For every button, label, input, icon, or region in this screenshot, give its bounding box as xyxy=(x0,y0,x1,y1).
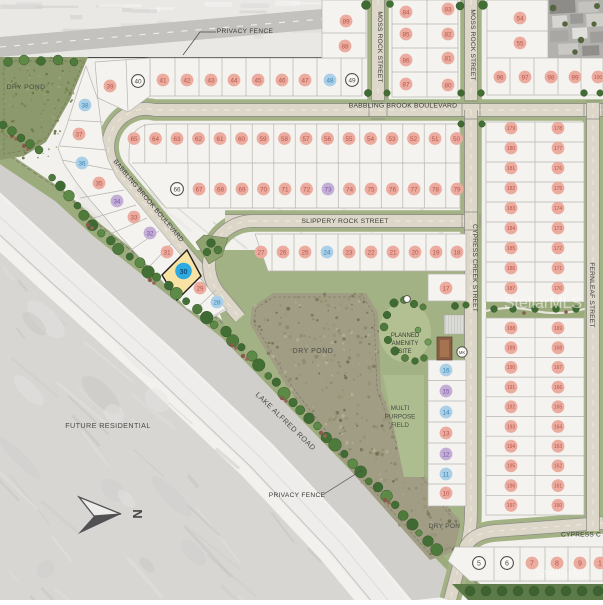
svg-text:23: 23 xyxy=(345,249,353,256)
svg-text:58: 58 xyxy=(281,136,289,143)
svg-text:72: 72 xyxy=(303,186,311,193)
svg-text:80: 80 xyxy=(444,82,452,89)
svg-text:71: 71 xyxy=(281,186,289,193)
svg-text:83: 83 xyxy=(444,6,452,13)
svg-text:31: 31 xyxy=(163,249,171,256)
svg-text:184: 184 xyxy=(507,226,516,232)
svg-text:FIELD: FIELD xyxy=(391,422,409,429)
svg-text:SITE: SITE xyxy=(398,349,411,355)
svg-text:57: 57 xyxy=(302,136,310,143)
svg-text:PURPOSE: PURPOSE xyxy=(385,414,416,421)
svg-text:166: 166 xyxy=(554,385,563,391)
svg-text:76: 76 xyxy=(389,186,397,193)
svg-text:MOSS ROCK STREET: MOSS ROCK STREET xyxy=(469,9,476,80)
svg-text:39: 39 xyxy=(106,83,114,90)
svg-text:BABBLING BROOK BOULEVARD: BABBLING BROOK BOULEVARD xyxy=(349,103,458,110)
svg-text:186: 186 xyxy=(507,266,516,272)
svg-text:61: 61 xyxy=(216,136,224,143)
svg-text:12: 12 xyxy=(442,451,450,458)
svg-text:163: 163 xyxy=(554,444,563,450)
svg-text:187: 187 xyxy=(507,286,516,292)
svg-text:54: 54 xyxy=(516,15,524,22)
svg-text:161: 161 xyxy=(554,483,563,489)
svg-text:StellarMLS: StellarMLS xyxy=(504,295,582,312)
svg-text:PLANNED: PLANNED xyxy=(391,333,420,339)
svg-text:78: 78 xyxy=(432,186,440,193)
svg-text:7: 7 xyxy=(530,561,534,568)
svg-text:47: 47 xyxy=(301,77,309,84)
svg-text:10: 10 xyxy=(442,490,450,497)
svg-text:26: 26 xyxy=(279,249,287,256)
svg-text:28: 28 xyxy=(213,299,221,306)
svg-text:17: 17 xyxy=(442,285,450,292)
svg-text:82: 82 xyxy=(444,31,452,38)
svg-text:15: 15 xyxy=(442,388,450,395)
svg-text:41: 41 xyxy=(159,77,167,84)
svg-text:65: 65 xyxy=(130,136,138,143)
svg-text:192: 192 xyxy=(507,405,516,411)
svg-text:86: 86 xyxy=(402,57,410,64)
svg-text:85: 85 xyxy=(402,31,410,38)
svg-text:44: 44 xyxy=(230,77,238,84)
svg-text:46: 46 xyxy=(278,77,286,84)
svg-text:30: 30 xyxy=(180,267,188,276)
svg-text:55: 55 xyxy=(345,136,353,143)
svg-text:188: 188 xyxy=(507,326,516,332)
svg-text:178: 178 xyxy=(554,126,563,132)
svg-text:185: 185 xyxy=(507,246,516,252)
svg-text:88: 88 xyxy=(341,43,349,50)
svg-text:74: 74 xyxy=(346,186,354,193)
svg-text:99: 99 xyxy=(571,74,579,81)
svg-text:52: 52 xyxy=(410,136,418,143)
svg-text:96: 96 xyxy=(496,74,504,81)
svg-text:SLIPPERY ROCK STREET: SLIPPERY ROCK STREET xyxy=(301,218,388,225)
svg-text:81: 81 xyxy=(444,55,452,62)
svg-text:16: 16 xyxy=(442,367,450,374)
svg-text:11: 11 xyxy=(443,471,450,478)
svg-text:168: 168 xyxy=(554,346,563,352)
svg-text:MK: MK xyxy=(459,350,466,355)
svg-text:DRY POND: DRY POND xyxy=(7,84,46,91)
svg-text:164: 164 xyxy=(554,424,563,430)
svg-text:51: 51 xyxy=(431,136,439,143)
svg-text:167: 167 xyxy=(554,365,563,371)
svg-text:48: 48 xyxy=(326,77,334,84)
svg-text:N: N xyxy=(130,509,145,518)
svg-text:197: 197 xyxy=(507,503,516,509)
svg-text:97: 97 xyxy=(521,74,529,81)
svg-text:64: 64 xyxy=(152,136,160,143)
svg-text:87: 87 xyxy=(402,81,410,88)
svg-text:FERNLEAF STREET: FERNLEAF STREET xyxy=(588,262,595,327)
svg-text:19: 19 xyxy=(432,249,440,256)
svg-text:MOSS ROCK STREET: MOSS ROCK STREET xyxy=(376,11,383,82)
svg-text:173: 173 xyxy=(554,226,563,232)
svg-text:56: 56 xyxy=(324,136,332,143)
svg-text:13: 13 xyxy=(442,430,450,437)
svg-text:79: 79 xyxy=(453,186,461,193)
svg-text:170: 170 xyxy=(554,286,563,292)
svg-text:194: 194 xyxy=(507,444,516,450)
svg-text:20: 20 xyxy=(411,249,419,256)
svg-text:190: 190 xyxy=(507,365,516,371)
svg-text:DRY POND: DRY POND xyxy=(293,348,334,355)
svg-text:36: 36 xyxy=(78,160,86,167)
svg-text:59: 59 xyxy=(259,136,267,143)
svg-text:172: 172 xyxy=(554,246,563,252)
svg-text:MULTI: MULTI xyxy=(391,405,410,412)
svg-text:43: 43 xyxy=(207,77,215,84)
svg-text:21: 21 xyxy=(389,249,397,256)
svg-text:84: 84 xyxy=(402,9,410,16)
svg-text:195: 195 xyxy=(507,464,516,470)
svg-text:42: 42 xyxy=(183,77,191,84)
svg-text:196: 196 xyxy=(507,483,516,489)
svg-text:27: 27 xyxy=(257,249,265,256)
svg-text:189: 189 xyxy=(507,346,516,352)
svg-text:1: 1 xyxy=(598,561,602,568)
svg-text:63: 63 xyxy=(173,136,181,143)
svg-text:55: 55 xyxy=(516,40,524,47)
svg-text:193: 193 xyxy=(507,424,516,430)
svg-text:35: 35 xyxy=(95,180,103,187)
svg-text:182: 182 xyxy=(507,186,516,192)
svg-text:53: 53 xyxy=(388,136,396,143)
svg-text:6: 6 xyxy=(505,561,509,568)
svg-text:191: 191 xyxy=(507,385,516,391)
svg-text:32: 32 xyxy=(146,230,154,237)
svg-text:StellarML: StellarML xyxy=(536,566,591,581)
svg-text:165: 165 xyxy=(554,405,563,411)
svg-text:67: 67 xyxy=(195,186,203,193)
svg-text:181: 181 xyxy=(507,166,516,172)
svg-text:73: 73 xyxy=(324,186,332,193)
svg-text:176: 176 xyxy=(554,166,563,172)
svg-text:160: 160 xyxy=(554,503,563,509)
svg-text:98: 98 xyxy=(547,74,555,81)
svg-text:100: 100 xyxy=(594,75,603,81)
svg-text:66: 66 xyxy=(173,186,181,193)
svg-text:177: 177 xyxy=(554,146,563,152)
svg-text:169: 169 xyxy=(554,326,563,332)
svg-text:89: 89 xyxy=(342,18,350,25)
svg-text:34: 34 xyxy=(113,198,121,205)
svg-text:FUTURE RESIDENTIAL: FUTURE RESIDENTIAL xyxy=(65,421,150,430)
svg-text:24: 24 xyxy=(323,249,331,256)
svg-text:175: 175 xyxy=(554,186,563,192)
svg-text:75: 75 xyxy=(367,186,375,193)
svg-text:62: 62 xyxy=(195,136,203,143)
svg-text:AMENITY: AMENITY xyxy=(392,341,419,347)
svg-text:70: 70 xyxy=(260,186,268,193)
svg-text:180: 180 xyxy=(507,146,516,152)
svg-text:54: 54 xyxy=(367,136,375,143)
svg-text:37: 37 xyxy=(75,131,83,138)
svg-text:68: 68 xyxy=(217,186,225,193)
svg-text:38: 38 xyxy=(81,102,89,109)
svg-text:PRIVACY FENCE: PRIVACY FENCE xyxy=(269,492,326,499)
svg-text:14: 14 xyxy=(442,409,450,416)
svg-text:49: 49 xyxy=(348,77,356,84)
svg-text:162: 162 xyxy=(554,464,563,470)
svg-text:PRIVACY FENCE: PRIVACY FENCE xyxy=(217,28,274,35)
svg-text:18: 18 xyxy=(453,249,461,256)
svg-text:5: 5 xyxy=(477,561,481,568)
svg-text:60: 60 xyxy=(238,136,246,143)
svg-text:77: 77 xyxy=(410,186,418,193)
svg-text:45: 45 xyxy=(254,77,262,84)
svg-text:69: 69 xyxy=(238,186,246,193)
svg-text:40: 40 xyxy=(134,78,142,85)
svg-text:183: 183 xyxy=(507,206,516,212)
svg-text:29: 29 xyxy=(196,285,204,292)
svg-text:174: 174 xyxy=(554,206,563,212)
svg-text:50: 50 xyxy=(453,136,461,143)
svg-text:22: 22 xyxy=(367,249,375,256)
svg-text:171: 171 xyxy=(554,266,563,272)
svg-text:33: 33 xyxy=(130,214,138,221)
svg-text:CYPRESS C: CYPRESS C xyxy=(561,532,601,539)
svg-text:CYPRESS CREEK STREET: CYPRESS CREEK STREET xyxy=(471,224,478,312)
svg-text:179: 179 xyxy=(507,126,516,132)
svg-text:25: 25 xyxy=(301,249,309,256)
